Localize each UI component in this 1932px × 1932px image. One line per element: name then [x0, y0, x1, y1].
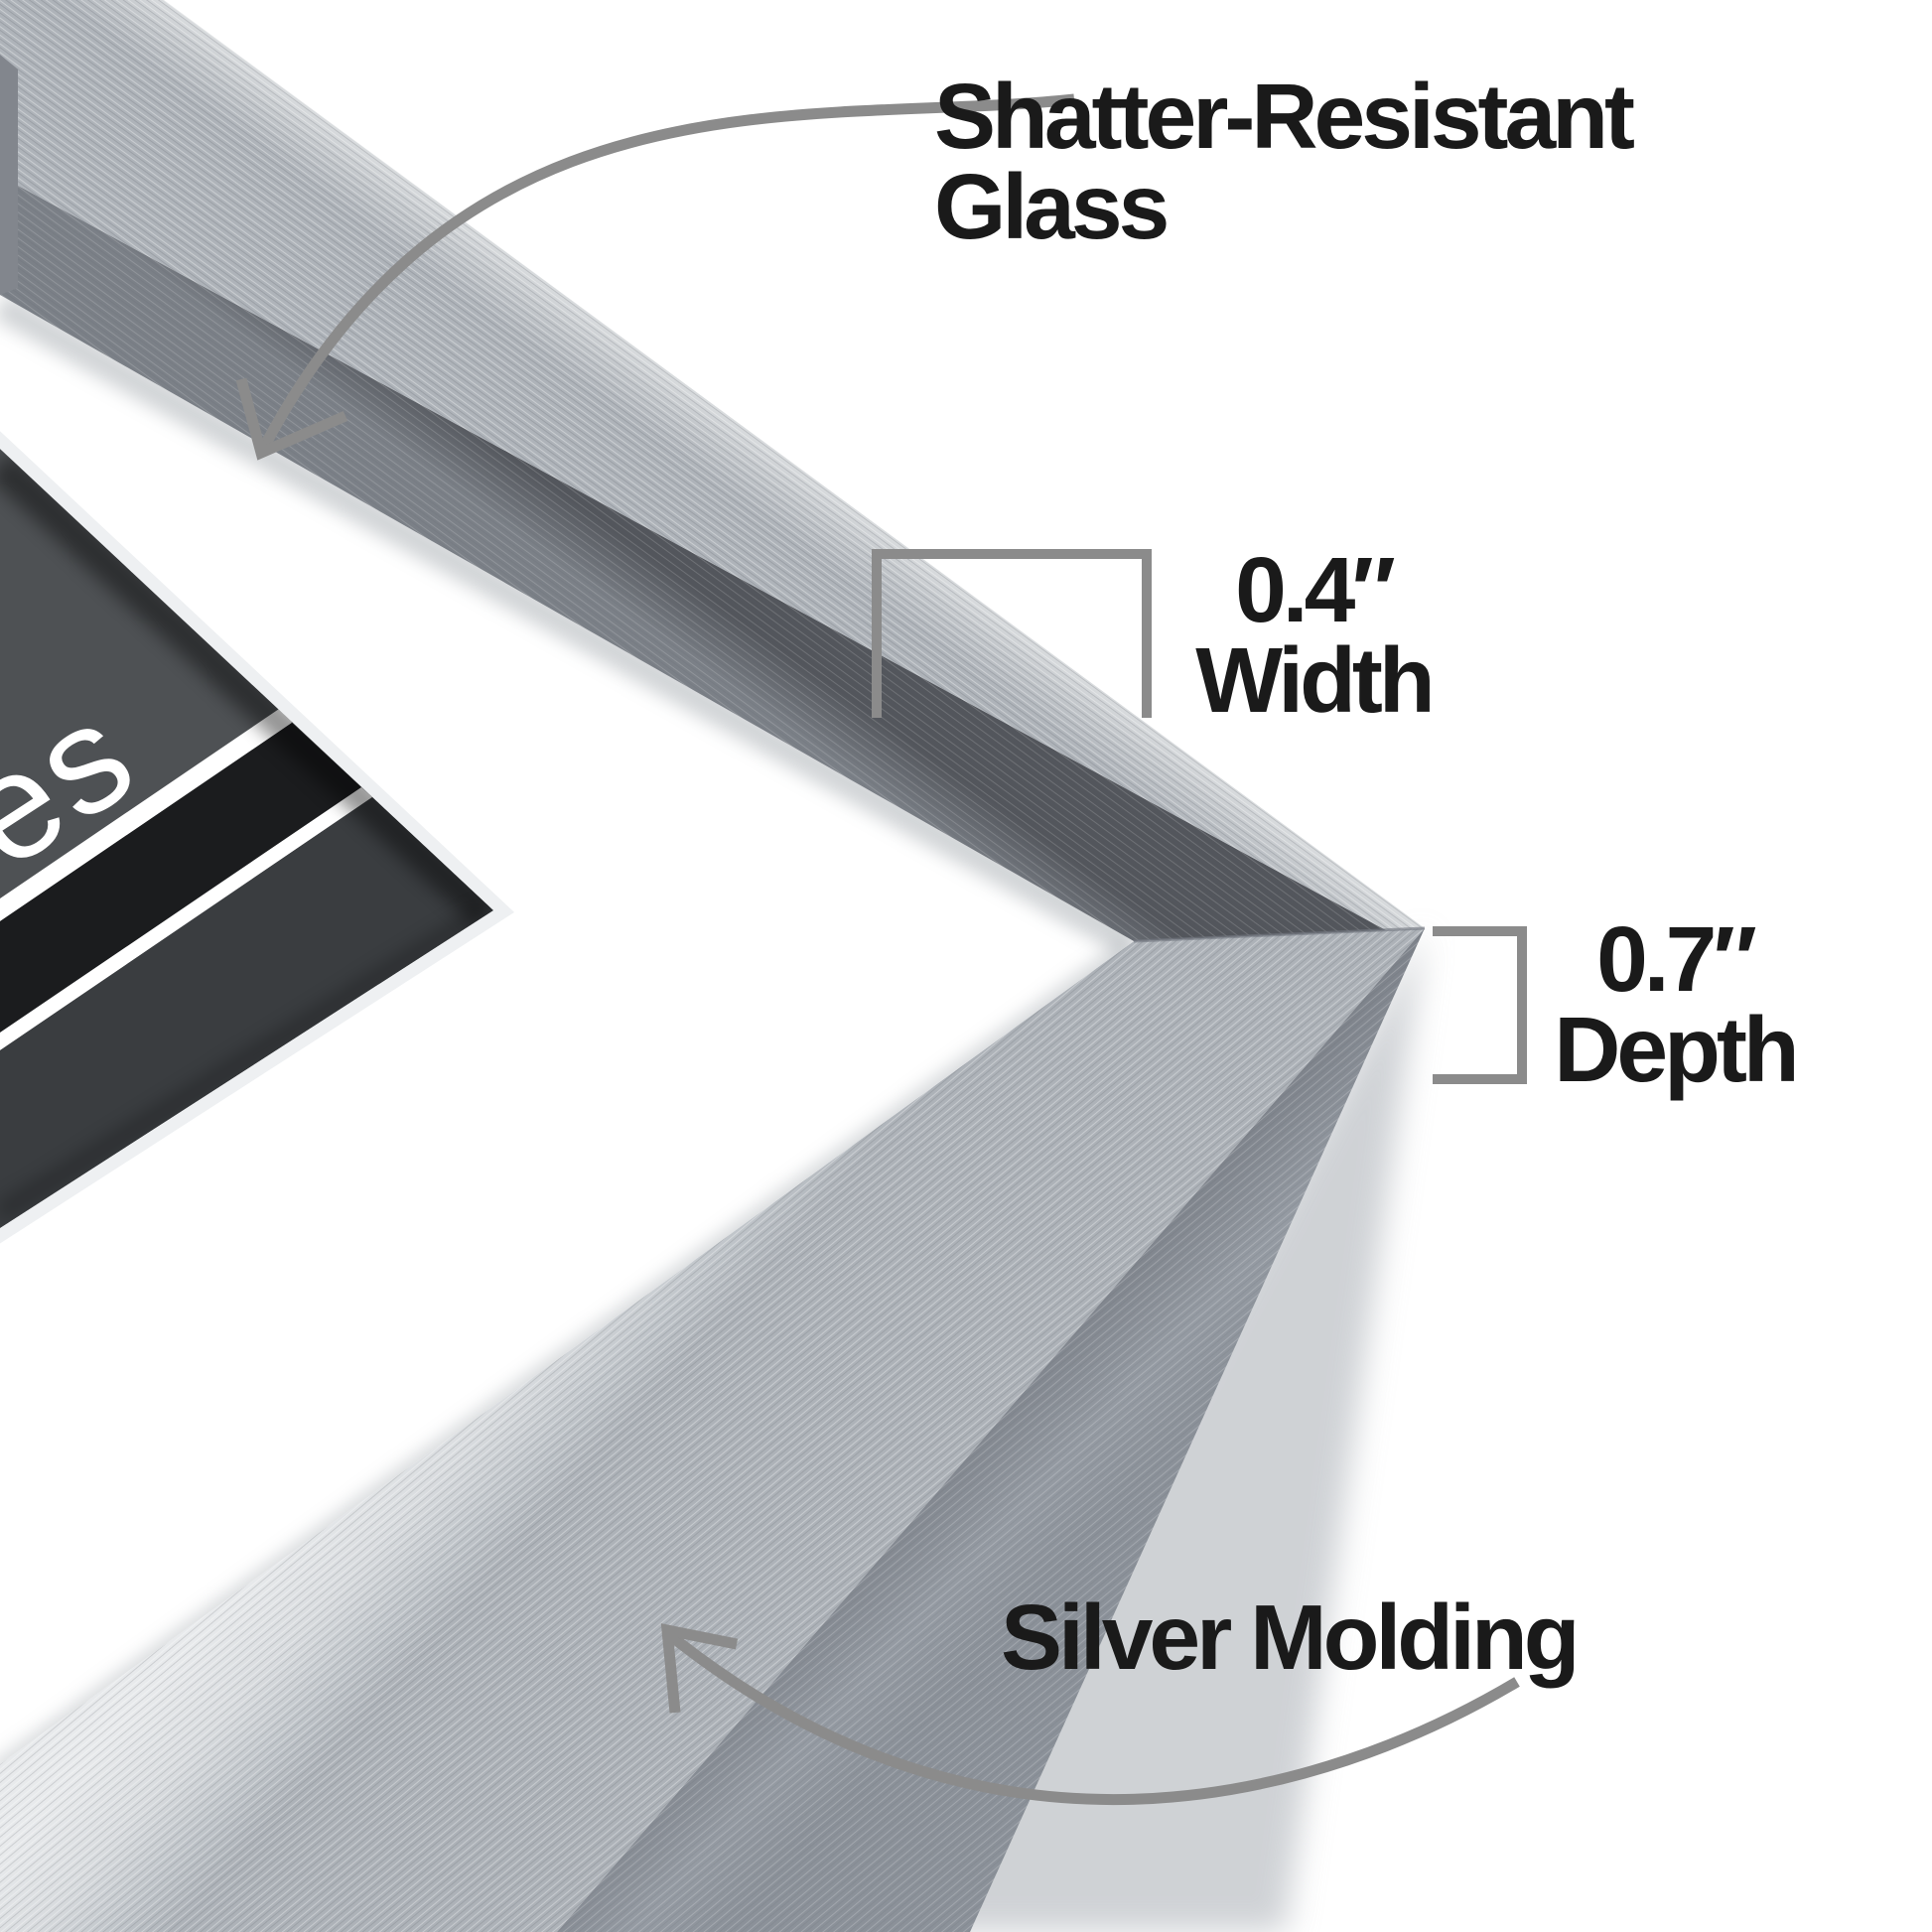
product-diagram: es	[0, 0, 1932, 1932]
depth-bracket-icon	[1433, 931, 1522, 1079]
glass-label-line2: Glass	[934, 162, 1631, 252]
glass-label-line1: Shatter-Resistant	[934, 71, 1631, 162]
width-caption: Width	[1179, 635, 1448, 726]
glass-label: Shatter-Resistant Glass	[934, 71, 1631, 252]
width-label: 0.4″ Width	[1179, 545, 1448, 726]
molding-caption: Silver Molding	[1001, 1592, 1577, 1683]
frame-edge-cut	[0, 55, 18, 295]
width-value: 0.4″	[1179, 545, 1448, 635]
molding-label: Silver Molding	[1001, 1592, 1577, 1683]
depth-caption: Depth	[1541, 1005, 1809, 1095]
depth-label: 0.7″ Depth	[1541, 914, 1809, 1095]
depth-value: 0.7″	[1541, 914, 1809, 1005]
